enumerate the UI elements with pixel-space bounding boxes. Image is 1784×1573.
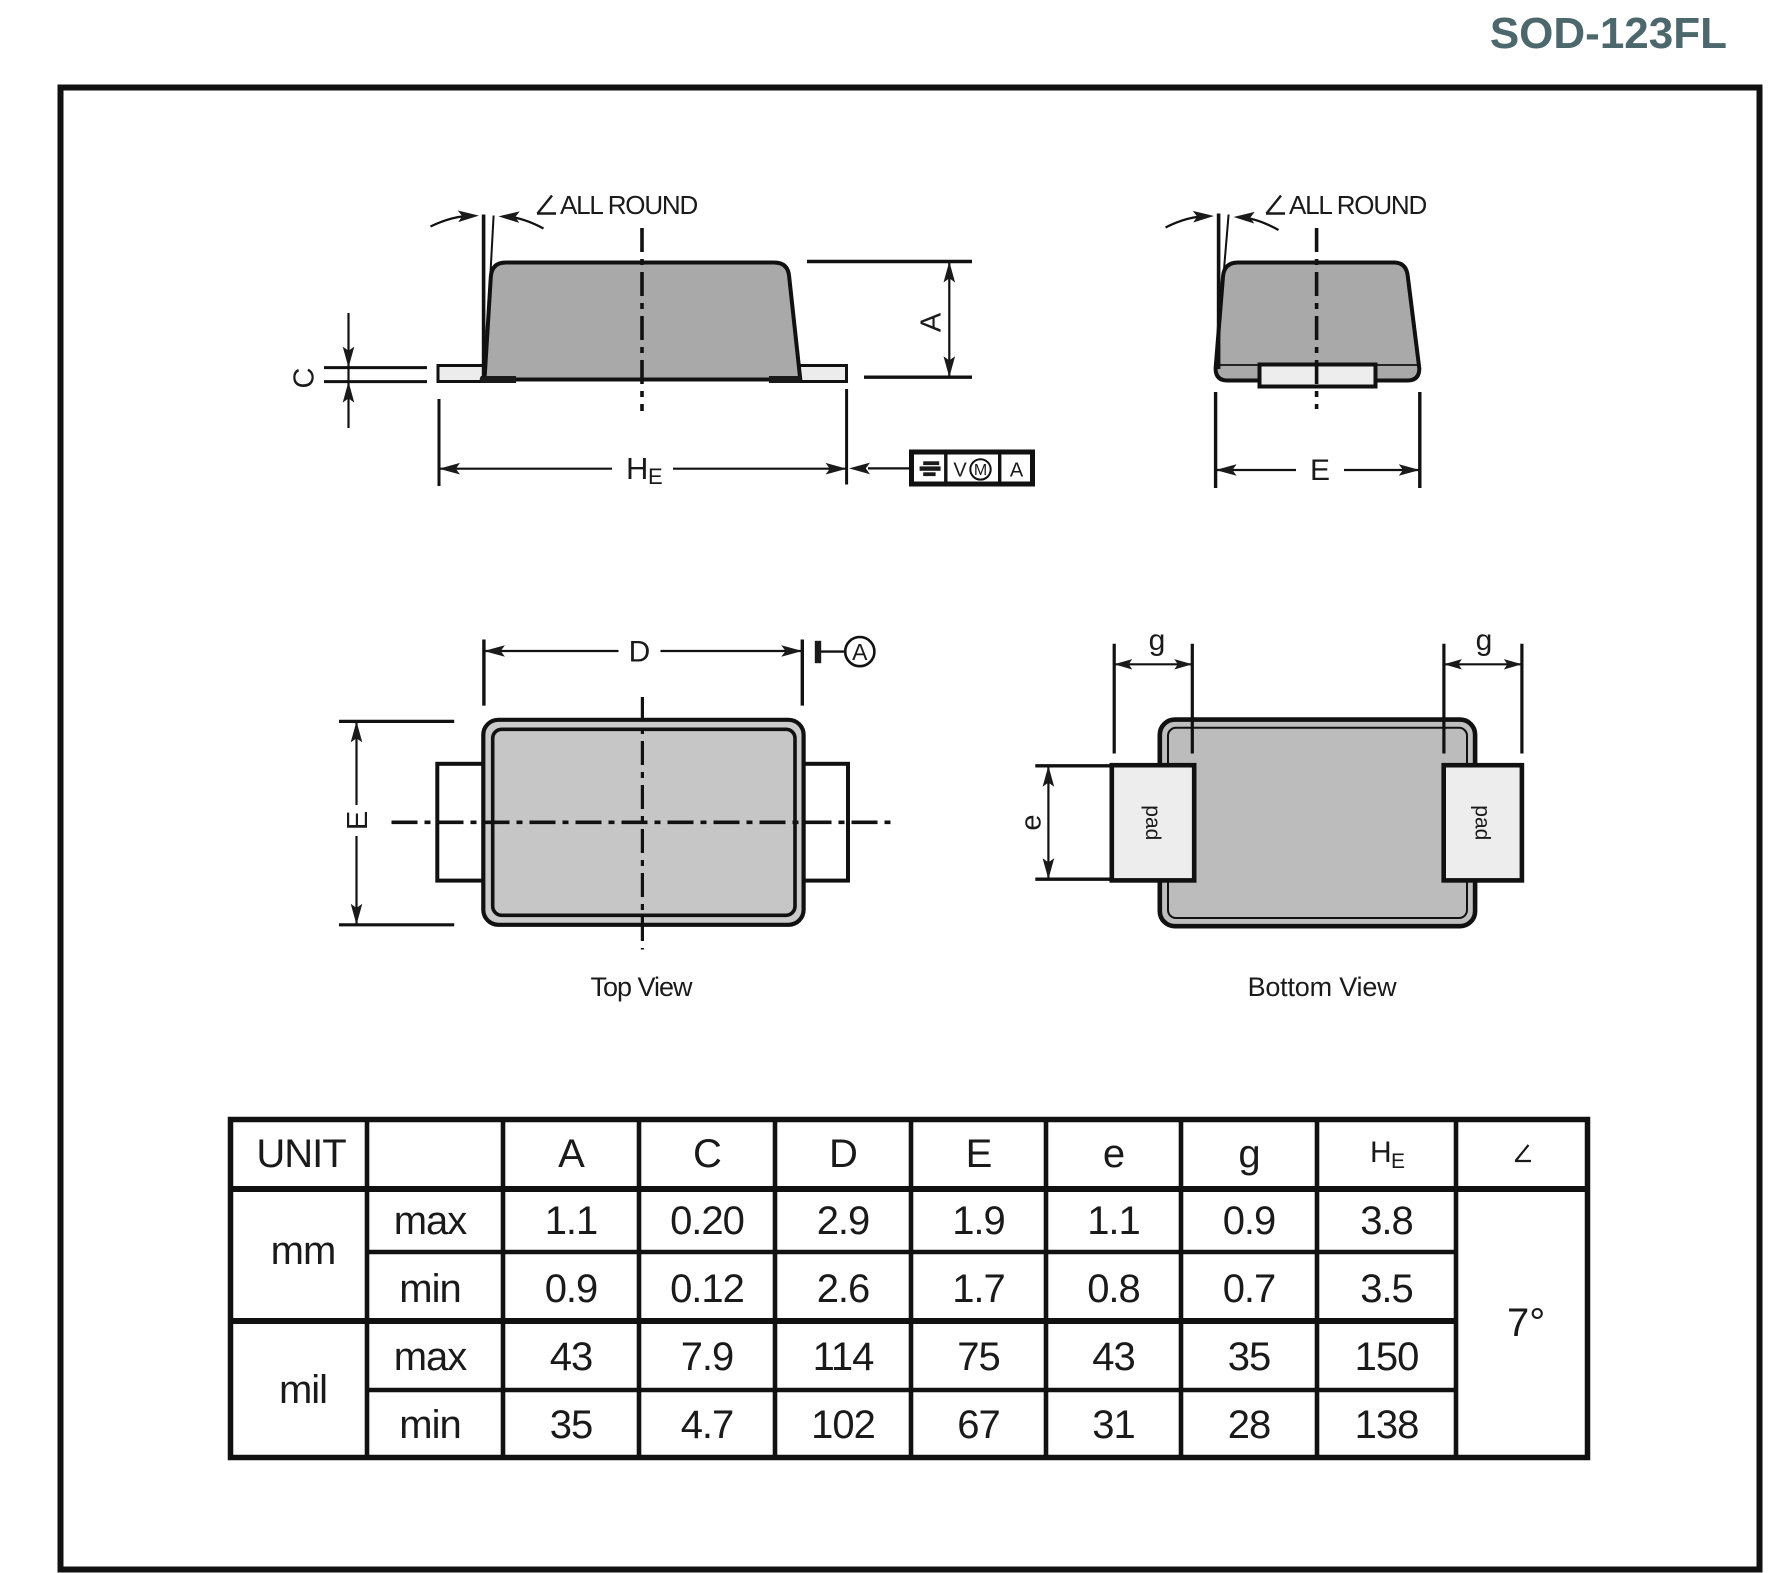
svg-text:75: 75: [957, 1335, 1000, 1379]
svg-text:7.9: 7.9: [681, 1335, 734, 1379]
svg-text:E: E: [342, 811, 374, 830]
svg-text:min: min: [399, 1403, 460, 1447]
svg-text:43: 43: [1092, 1335, 1135, 1379]
svg-text:max: max: [394, 1335, 468, 1379]
svg-text:mm: mm: [271, 1229, 336, 1273]
svg-text:43: 43: [550, 1335, 593, 1379]
svg-text:g: g: [1149, 624, 1166, 657]
svg-text:7°: 7°: [1507, 1301, 1545, 1345]
svg-text:C: C: [693, 1132, 721, 1176]
svg-text:28: 28: [1228, 1403, 1271, 1447]
svg-text:1.9: 1.9: [952, 1199, 1005, 1243]
svg-text:e: e: [1016, 814, 1048, 830]
svg-text:SOD-123FL: SOD-123FL: [1490, 9, 1727, 58]
svg-text:31: 31: [1092, 1403, 1135, 1447]
svg-text:1.1: 1.1: [1087, 1199, 1140, 1243]
svg-text:4.7: 4.7: [681, 1403, 734, 1447]
svg-text:pad: pad: [1471, 805, 1494, 840]
svg-text:C: C: [289, 368, 321, 389]
svg-text:M: M: [974, 462, 987, 479]
svg-text:A: A: [1010, 460, 1024, 482]
svg-text:g: g: [1476, 624, 1493, 657]
svg-text:V: V: [953, 460, 967, 482]
svg-text:ALL ROUND: ALL ROUND: [1289, 190, 1426, 220]
svg-text:0.8: 0.8: [1087, 1267, 1140, 1311]
svg-text:A: A: [558, 1132, 585, 1176]
svg-text:0.9: 0.9: [545, 1267, 598, 1311]
svg-text:A: A: [852, 639, 868, 665]
svg-text:150: 150: [1355, 1335, 1419, 1379]
svg-text:g: g: [1238, 1132, 1259, 1176]
svg-text:102: 102: [811, 1403, 875, 1447]
svg-text:mil: mil: [279, 1368, 327, 1412]
svg-text:D: D: [629, 636, 651, 669]
svg-text:3.5: 3.5: [1360, 1267, 1413, 1311]
svg-text:ALL ROUND: ALL ROUND: [560, 190, 697, 220]
svg-text:D: D: [829, 1132, 857, 1176]
svg-text:1.1: 1.1: [545, 1199, 598, 1243]
svg-text:0.12: 0.12: [670, 1267, 744, 1311]
svg-text:3.8: 3.8: [1360, 1199, 1413, 1243]
svg-text:A: A: [916, 312, 948, 332]
svg-text:1.7: 1.7: [952, 1267, 1005, 1311]
svg-text:min: min: [399, 1267, 460, 1311]
svg-text:35: 35: [550, 1403, 593, 1447]
svg-text:E: E: [1391, 1150, 1405, 1173]
svg-text:H: H: [1370, 1136, 1392, 1169]
svg-text:2.6: 2.6: [817, 1267, 870, 1311]
svg-text:138: 138: [1355, 1403, 1419, 1447]
svg-text:67: 67: [957, 1403, 1000, 1447]
svg-text:e: e: [1103, 1132, 1124, 1176]
svg-text:UNIT: UNIT: [256, 1132, 346, 1176]
svg-text:Top View: Top View: [590, 972, 693, 1002]
svg-text:0.9: 0.9: [1223, 1199, 1276, 1243]
svg-text:114: 114: [813, 1335, 875, 1379]
svg-text:max: max: [394, 1199, 468, 1243]
svg-text:E: E: [1310, 454, 1330, 487]
svg-text:E: E: [966, 1132, 992, 1176]
svg-text:pad: pad: [1141, 805, 1164, 840]
svg-text:0.7: 0.7: [1223, 1267, 1276, 1311]
svg-text:Bottom View: Bottom View: [1248, 972, 1398, 1002]
svg-text:2.9: 2.9: [817, 1199, 870, 1243]
svg-text:E: E: [648, 464, 663, 489]
svg-text:H: H: [626, 451, 648, 486]
svg-text:0.20: 0.20: [670, 1199, 744, 1243]
svg-text:35: 35: [1228, 1335, 1271, 1379]
